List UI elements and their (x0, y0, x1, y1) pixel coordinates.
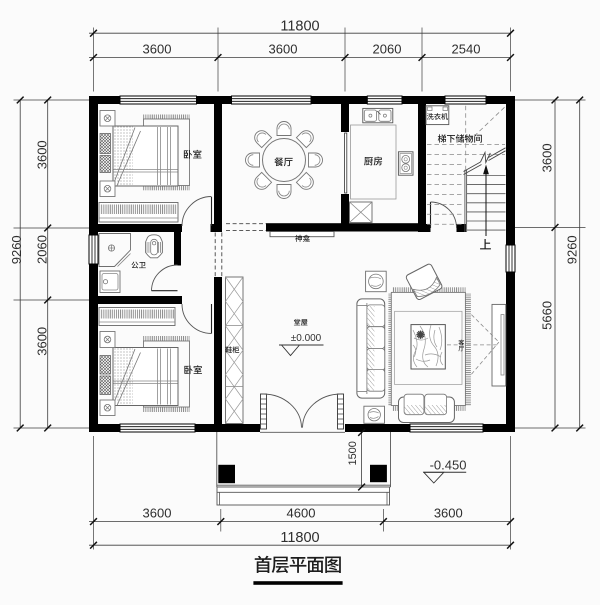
svg-text:2060: 2060 (35, 235, 50, 264)
svg-text:2540: 2540 (452, 42, 481, 57)
svg-text:±0.000: ±0.000 (291, 333, 322, 344)
svg-text:5660: 5660 (540, 301, 555, 330)
svg-text:11800: 11800 (280, 530, 319, 546)
svg-text:1500: 1500 (347, 441, 359, 465)
svg-text:3600: 3600 (35, 327, 50, 356)
svg-text:3600: 3600 (143, 42, 172, 57)
svg-text:3600: 3600 (540, 143, 555, 172)
svg-text:3600: 3600 (434, 505, 463, 520)
svg-text:9260: 9260 (565, 235, 580, 264)
svg-text:3600: 3600 (143, 505, 172, 520)
svg-text:4600: 4600 (287, 505, 316, 520)
svg-text:11800: 11800 (280, 19, 319, 35)
svg-text:-0.450: -0.450 (430, 458, 467, 473)
svg-text:2060: 2060 (373, 42, 402, 57)
svg-text:3600: 3600 (269, 42, 298, 57)
svg-text:9260: 9260 (9, 235, 24, 264)
svg-text:3600: 3600 (35, 140, 50, 169)
